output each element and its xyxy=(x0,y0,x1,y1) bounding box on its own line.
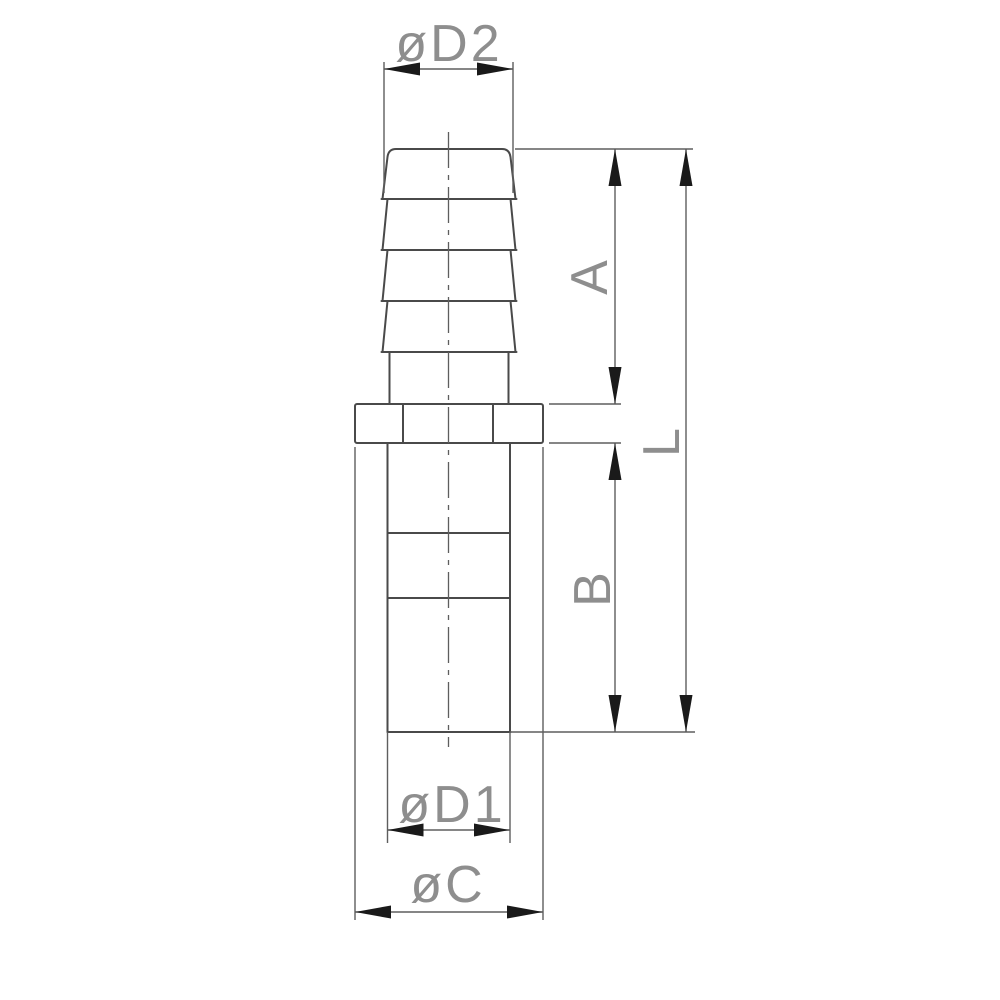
barb-ridge-side-left xyxy=(383,199,388,250)
arrowhead-a-bottom xyxy=(609,367,622,404)
arrowhead-c-right xyxy=(507,906,543,919)
dimension-label-l: L xyxy=(633,425,691,457)
dimension-label-c: øC xyxy=(410,856,485,914)
barb-ridge-side-left xyxy=(383,301,388,352)
barb-ridge-side-right xyxy=(511,199,516,250)
barb-ridge-side-right xyxy=(511,301,516,352)
arrowhead-c-left xyxy=(355,906,391,919)
barb-ridge-side-right xyxy=(511,250,516,301)
dimension-label-d2: øD2 xyxy=(395,15,502,73)
technical-drawing: øD2 A L B øD1 øC xyxy=(0,0,1000,1000)
arrowhead-b-bottom xyxy=(609,695,622,732)
dimension-label-a: A xyxy=(561,257,619,295)
dimension-label-d1: øD1 xyxy=(398,776,505,834)
arrowhead-l-top xyxy=(680,149,693,186)
dimension-label-b: B xyxy=(564,569,622,607)
barb-ridge-side-left xyxy=(383,250,388,301)
drawing-canvas: øD2 A L B øD1 øC xyxy=(0,0,1000,1000)
arrowhead-a-top xyxy=(609,149,622,186)
arrowhead-b-top xyxy=(609,443,622,480)
arrowhead-l-bottom xyxy=(680,695,693,732)
